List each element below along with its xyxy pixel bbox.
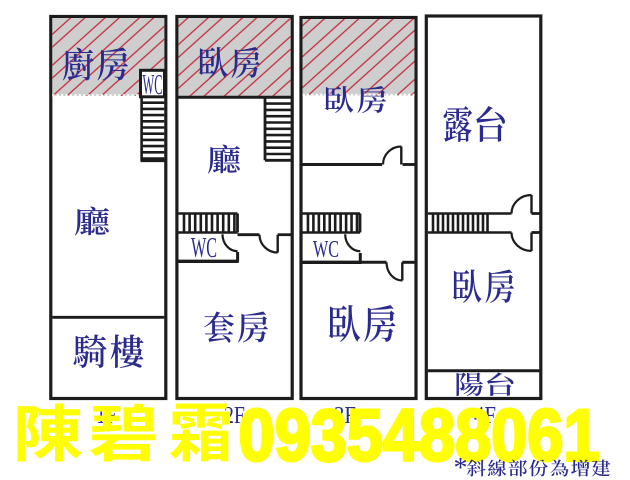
svg-text:WC: WC	[143, 69, 163, 101]
svg-text:WC: WC	[313, 237, 339, 263]
svg-text:*: *	[454, 453, 468, 480]
svg-text:0935488061: 0935488061	[239, 396, 600, 477]
svg-text:WC: WC	[191, 233, 217, 264]
